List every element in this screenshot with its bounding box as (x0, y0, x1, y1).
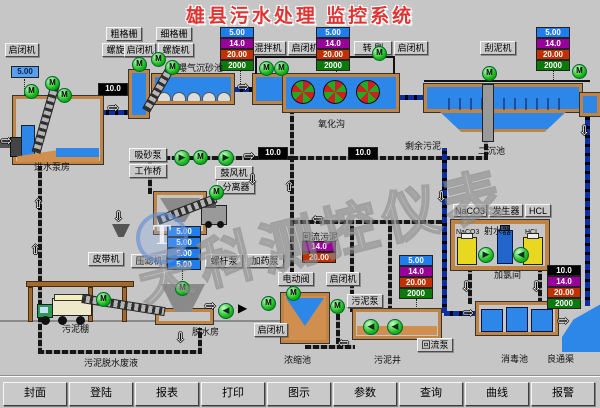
pressure-readout: 20.00 (547, 287, 581, 298)
motor-icon[interactable]: M (274, 61, 289, 76)
chlorination-room-label: 加氯间 (494, 268, 521, 281)
sludge-pump-button[interactable]: 污泥泵 (347, 294, 383, 308)
motor-icon[interactable]: M (24, 84, 39, 99)
inlet-pump-house-label: 进水泵房 (34, 160, 70, 173)
valve-icon[interactable]: ⇨ (244, 149, 255, 162)
valve-icon[interactable]: ⇨ (558, 314, 569, 327)
dosing-pump-button[interactable]: 加药泵 (246, 254, 284, 268)
motor-icon[interactable]: M (330, 299, 345, 314)
motor-icon[interactable]: M (96, 292, 111, 307)
total-readout: 2000 (316, 60, 350, 71)
toolbar-button-print[interactable]: 打印 (201, 382, 265, 406)
disinfection-cell (481, 309, 503, 332)
toolbar-button-query[interactable]: 查询 (399, 382, 463, 406)
flow-meter-readout: 10.0 (258, 147, 288, 160)
level-readout: 14.0 (302, 241, 336, 252)
total-readout: 2000 (399, 288, 433, 299)
pump-icon[interactable]: ◀ (218, 303, 234, 319)
motor-icon[interactable]: M (45, 76, 60, 91)
flow-readout: 5.00 (536, 27, 570, 38)
pipe-return-riser (290, 102, 294, 298)
clarifier-outlet-box (580, 93, 600, 116)
motor-icon[interactable]: M (259, 61, 274, 76)
clarifier-hopper (438, 110, 568, 132)
pump-icon[interactable]: ▶ (174, 150, 190, 166)
belt-machine-button[interactable]: 皮带机 (88, 252, 124, 266)
motor-icon[interactable]: M (482, 66, 497, 81)
pressure-readout: 20.00 (316, 49, 350, 60)
sand-pump-button[interactable]: 吸砂泵 (129, 148, 167, 162)
level-readout: 14.0 (399, 266, 433, 277)
flow-readout: 5.00 (167, 226, 201, 237)
hoist-button-1[interactable]: 启闭机 (5, 43, 39, 57)
valve-icon[interactable]: ⇦ (338, 336, 349, 349)
level-readout: 14.0 (220, 38, 254, 49)
hcl-button[interactable]: HCL (525, 204, 551, 217)
bottom-toolbar: 封面 登陆 报表 打印 图示 参数 查询 曲线 报警 (0, 376, 600, 408)
motor-icon[interactable]: M (151, 52, 166, 67)
motor-icon[interactable]: M (57, 88, 72, 103)
sludge-well-label: 污泥井 (374, 353, 401, 366)
toolbar-button-report[interactable]: 报表 (135, 382, 199, 406)
electric-valve-button[interactable]: 电动阀 (278, 272, 314, 286)
page-title: 雄县污水处理 监控系统 (0, 1, 600, 28)
dewatering-house-label: 脱水房 (192, 325, 219, 338)
ditch-rail-post (393, 56, 395, 74)
pump-icon[interactable]: ▶ (218, 150, 234, 166)
motor-icon[interactable]: M (261, 296, 276, 311)
valve-icon[interactable]: ⇨ (108, 101, 119, 114)
truck-wheel (41, 316, 50, 325)
toolbar-button-alarm[interactable]: 报警 (531, 382, 595, 406)
toolbar-button-params[interactable]: 参数 (333, 382, 397, 406)
valve-icon[interactable]: ⇩ (436, 190, 447, 203)
toolbar-button-curve[interactable]: 曲线 (465, 382, 529, 406)
pipe-sludgepump-2 (388, 224, 392, 312)
mixer-button[interactable]: 混拌机 (250, 41, 286, 55)
diffuser-dome (202, 92, 216, 104)
level-readout: 14.0 (547, 276, 581, 287)
thickener-label: 浓缩池 (284, 353, 311, 366)
screw-pump-button[interactable]: 螺杆泵 (205, 254, 243, 268)
hoist-button-5[interactable]: 启闭机 (326, 272, 360, 286)
clarifier-center-pillar (482, 84, 494, 142)
clarifier-bridge (424, 80, 590, 82)
level-readout: 14.0 (316, 38, 350, 49)
valve-icon[interactable]: ⇨ (463, 306, 474, 319)
pressure-readout: 20.00 (302, 252, 336, 263)
machine-wheel (217, 221, 224, 228)
pump-icon[interactable]: ◀ (513, 247, 529, 263)
motor-icon[interactable]: M (286, 286, 301, 301)
separator-machine (201, 205, 227, 225)
valve-icon[interactable]: ⇧ (30, 243, 41, 256)
fine-screen-button[interactable]: 细格栅 (156, 27, 192, 41)
aerator-rotor-icon[interactable] (323, 80, 347, 104)
thickener-tank (281, 293, 329, 343)
flow-readout: 5.00 (167, 259, 201, 270)
excess-sludge-label: 剩余污泥 (405, 139, 441, 152)
thickener-cone (286, 298, 324, 326)
hoist-button-4[interactable]: 启闭机 (394, 41, 428, 55)
pump-icon[interactable]: ◀ (387, 319, 403, 335)
valve-icon[interactable]: ⇨ (205, 299, 216, 312)
motor-icon[interactable]: M (175, 281, 190, 296)
dewatering-waste-label: 污泥脱水废液 (84, 356, 138, 369)
valve-icon[interactable]: ⇩ (579, 124, 590, 137)
outfall-label: 良通渠 (547, 352, 574, 365)
disinfection-cell (531, 309, 553, 332)
sludge-shed-label: 污泥棚 (62, 322, 89, 335)
level-readout: 14.0 (536, 38, 570, 49)
pipe-right-drop (585, 116, 590, 306)
oxidation-ditch-label: 氧化沟 (318, 117, 345, 130)
valve-icon[interactable]: ⇦ (312, 212, 323, 225)
pressure-readout: 20.00 (399, 277, 433, 288)
tank-water (56, 148, 99, 157)
toolbar-button-diagram[interactable]: 图示 (267, 382, 331, 406)
disinfection-label: 消毒池 (501, 352, 528, 365)
pipe-waste-riser (38, 166, 42, 354)
flow-readout: 10.0 (547, 265, 581, 276)
total-readout: 2000 (220, 60, 254, 71)
scraper-button[interactable]: 刮泥机 (480, 41, 516, 55)
valve-icon[interactable]: ⇧ (33, 197, 44, 210)
machine-wheel (205, 221, 212, 228)
scada-screen: 雄县污水处理 监控系统 粗格栅 启闭机 螺旋机 细格栅 启闭机 螺旋机 混拌机 … (0, 0, 600, 408)
generator-button[interactable]: 发生器 (489, 204, 523, 217)
naco3-button[interactable]: NaCO3 (453, 204, 487, 217)
motor-icon[interactable]: M (209, 185, 224, 200)
motor-icon[interactable]: M (572, 64, 587, 79)
shed-post (28, 287, 33, 322)
pipe-ditch-to-clarifier (399, 95, 424, 100)
valve-icon[interactable]: ⇩ (247, 173, 258, 186)
shed-roof-beam (26, 281, 134, 287)
naco3-tank (457, 237, 477, 265)
diffuser-dome (217, 92, 231, 104)
valve-icon[interactable]: ⇩ (113, 210, 124, 223)
chute-icon (112, 224, 130, 237)
motor-icon[interactable]: M (372, 46, 387, 61)
valve-icon[interactable]: ⇧ (284, 180, 295, 193)
inlet-pump-house-tank (13, 96, 103, 164)
total-readout: 2000 (547, 298, 581, 309)
flow-readout: 5.00 (316, 27, 350, 38)
water-jet-label: 射水器 (484, 224, 511, 237)
aerator-rotor-icon[interactable] (356, 80, 380, 104)
flow-meter-readout: 10.0 (98, 83, 128, 96)
work-bridge-button[interactable]: 工作桥 (129, 164, 167, 178)
hcl-tank-label: HCL (525, 229, 539, 236)
pressure-readout: 20.00 (536, 49, 570, 60)
toolbar-button-cover[interactable]: 封面 (3, 382, 67, 406)
reflux-pump-button[interactable]: 回流泵 (417, 338, 453, 352)
flow-arrow-icon: ▶ (238, 301, 247, 315)
clarifier-lamella (448, 98, 560, 110)
flow-meter-readout: 10.0 (348, 147, 378, 160)
hoist-button-6[interactable]: 启闭机 (254, 323, 288, 337)
diffuser-dome (172, 92, 186, 104)
motor-icon[interactable]: M (193, 150, 208, 165)
pump-icon[interactable]: ▶ (478, 247, 494, 263)
coarse-screen-button[interactable]: 粗格栅 (106, 27, 142, 41)
pressure-readout: 20.00 (220, 49, 254, 60)
truck-window (40, 307, 48, 313)
inflow-arrow-icon: ⇨ (1, 134, 12, 147)
aerated-grit-label: 曝气沉砂池 (178, 61, 223, 74)
aerator-rotor-icon[interactable] (291, 80, 315, 104)
filter-press-button[interactable]: 压滤机 (131, 254, 167, 268)
motor-icon[interactable]: M (132, 57, 147, 72)
secondary-clarifier-label: 二沉池 (478, 144, 505, 157)
toolbar-button-login[interactable]: 登陆 (69, 382, 133, 406)
pipe-waste-line (38, 350, 200, 354)
flow-readout: 5.00 (167, 248, 201, 259)
total-readout: 2000 (536, 60, 570, 71)
inlet-level-readout: 5.00 (11, 66, 39, 78)
naco3-tank-label: NaCO3 (456, 229, 479, 236)
valve-icon[interactable]: ⇨ (238, 80, 249, 93)
valve-icon[interactable]: ⇩ (175, 331, 186, 344)
pipe-clarified-drop (442, 148, 447, 313)
flow-readout: 5.00 (167, 237, 201, 248)
valve-icon[interactable]: ⇩ (531, 280, 542, 293)
pump-icon[interactable]: ◀ (363, 319, 379, 335)
ditch-rail-post (255, 56, 257, 74)
valve-icon[interactable]: ⇩ (461, 280, 472, 293)
flow-readout: 5.00 (399, 255, 433, 266)
disinfection-cell (506, 307, 528, 332)
diffuser-dome (187, 92, 201, 104)
motor-icon[interactable]: M (165, 60, 180, 75)
flow-readout: 5.00 (220, 27, 254, 38)
